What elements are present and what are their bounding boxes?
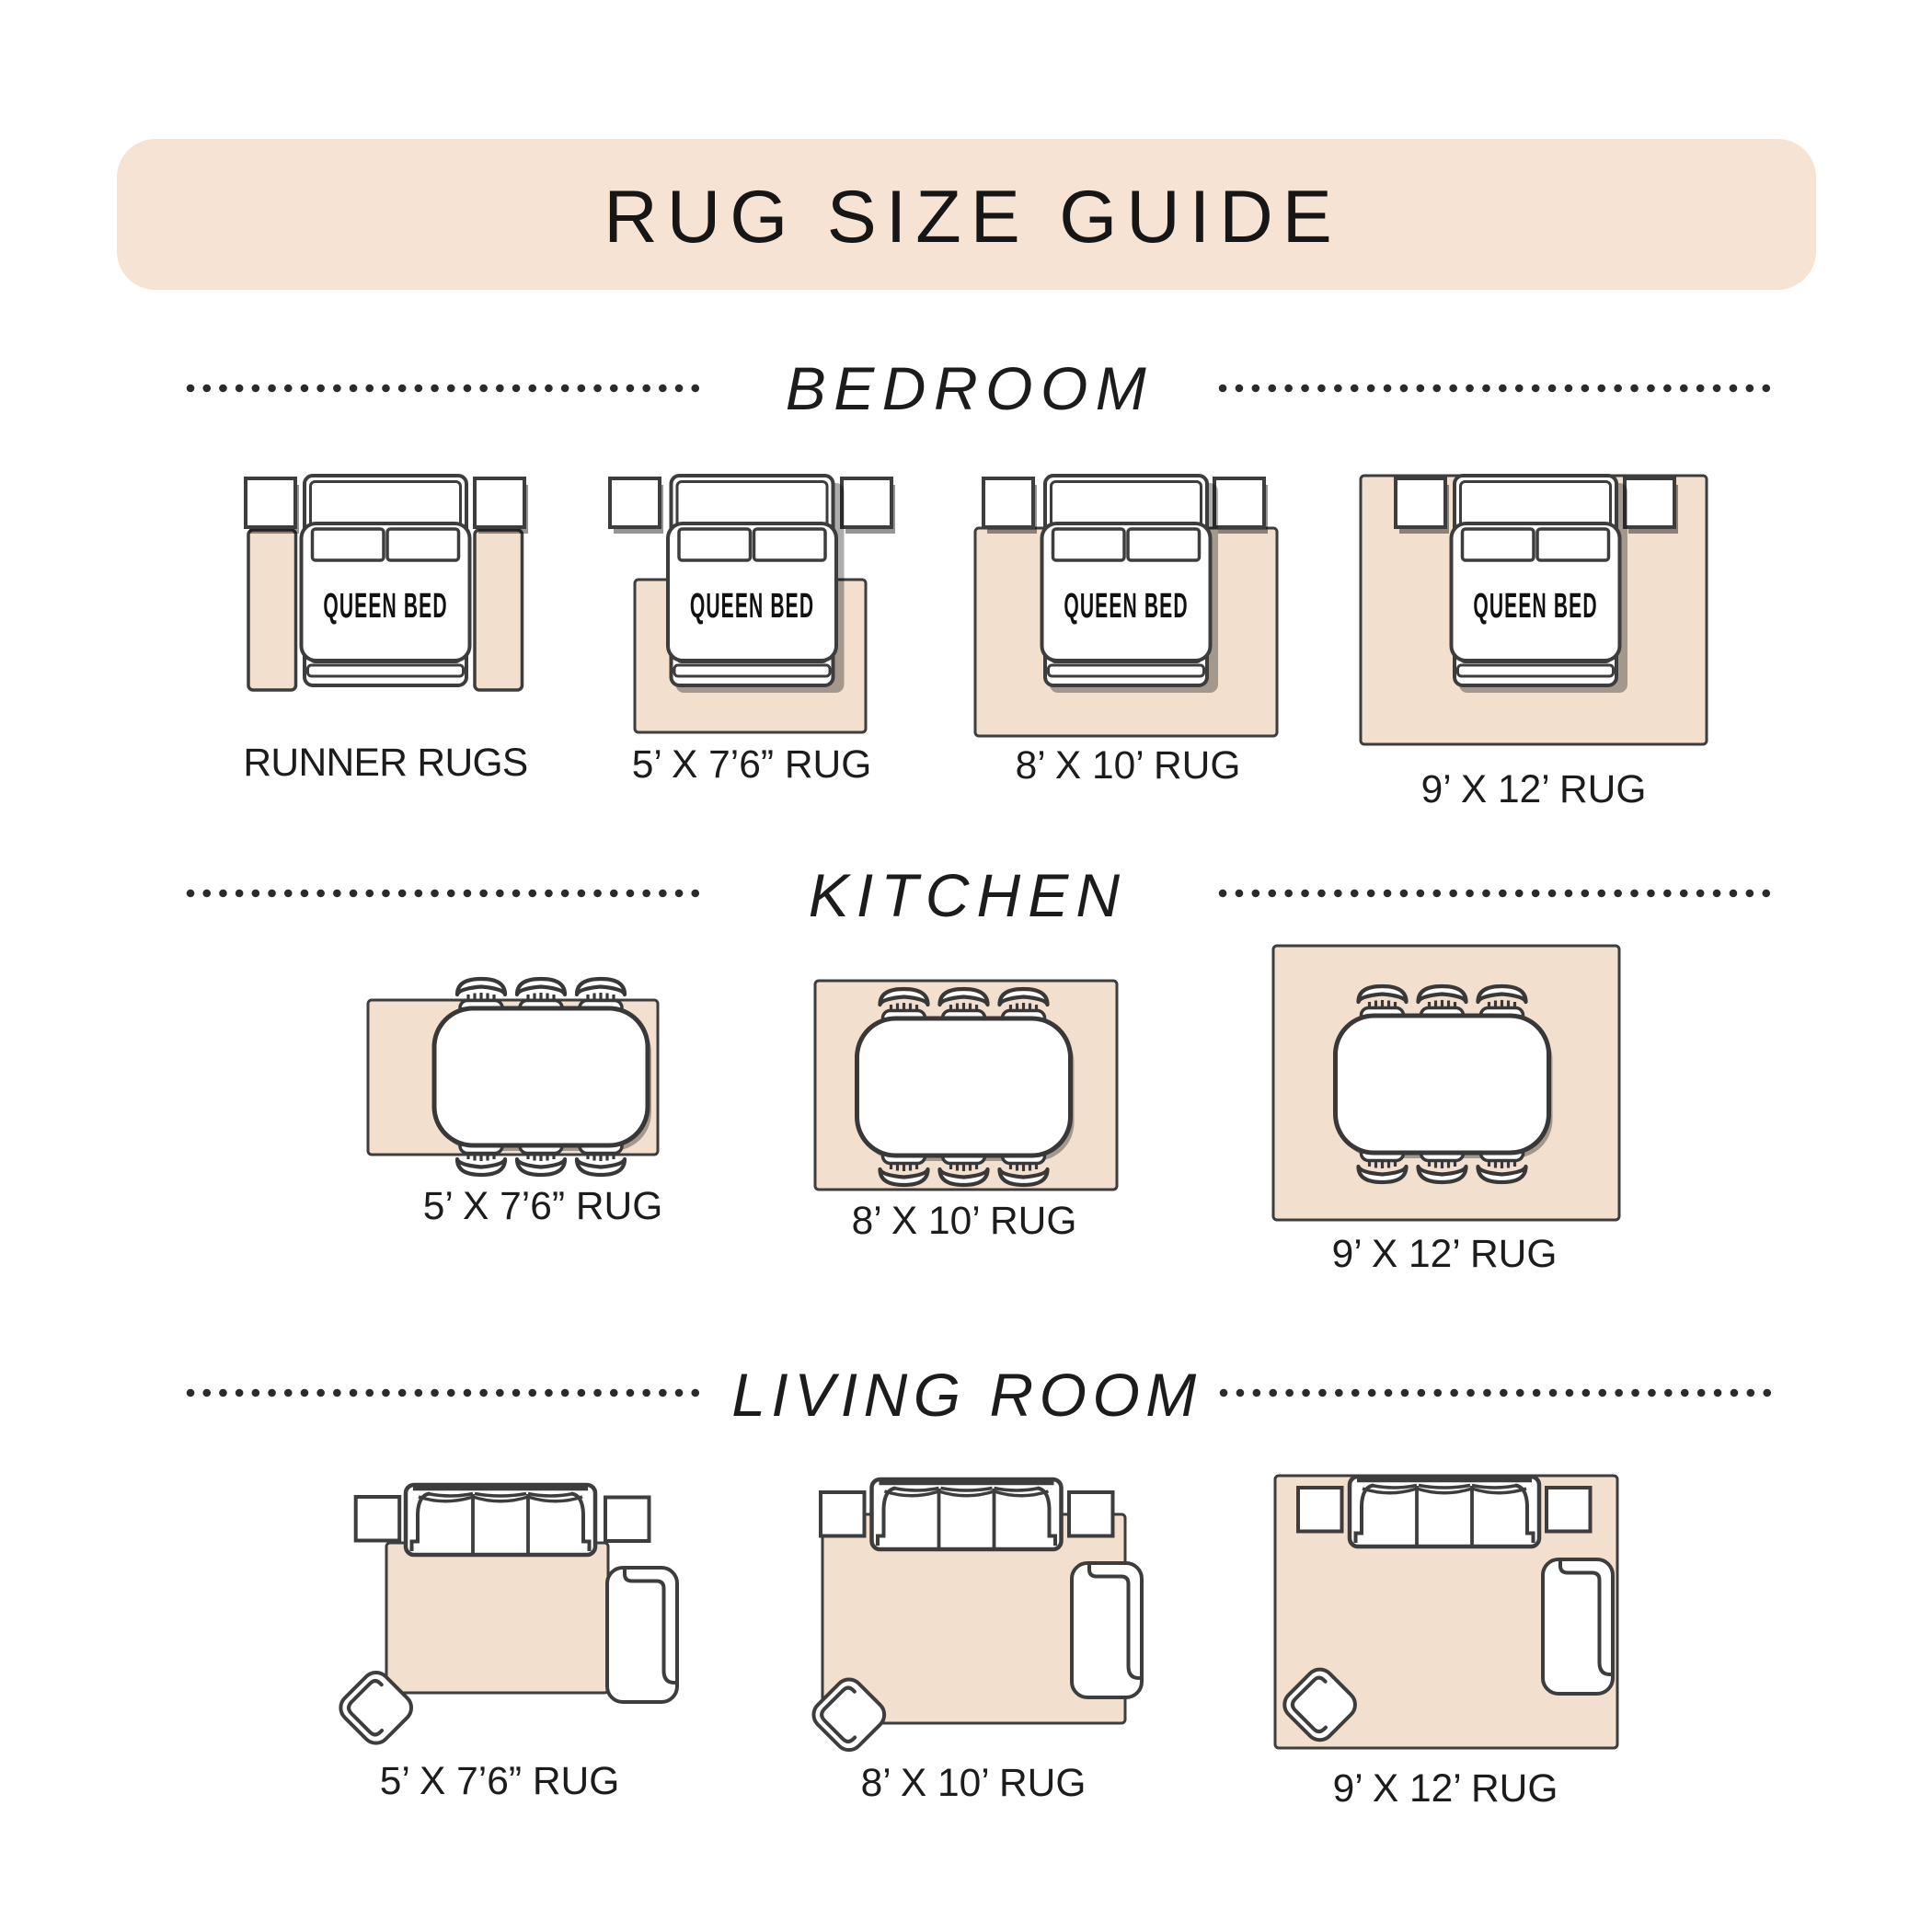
svg-text:RUNNER RUGS: RUNNER RUGS — [243, 742, 527, 785]
svg-text:9’ X 12’ RUG: 9’ X 12’ RUG — [1333, 1767, 1558, 1811]
svg-text:QUEEN BED: QUEEN BED — [1064, 585, 1188, 625]
svg-text:QUEEN BED: QUEEN BED — [1473, 585, 1597, 625]
svg-text:5’ X 7’6” RUG: 5’ X 7’6” RUG — [632, 743, 872, 787]
svg-text:8’ X 10’ RUG: 8’ X 10’ RUG — [1016, 744, 1241, 788]
svg-text:BEDROOM: BEDROOM — [786, 354, 1155, 422]
svg-text:LIVING ROOM: LIVING ROOM — [731, 1361, 1202, 1429]
svg-text:9’ X 12’ RUG: 9’ X 12’ RUG — [1421, 768, 1647, 811]
svg-text:QUEEN BED: QUEEN BED — [690, 585, 814, 625]
svg-text:RUG SIZE GUIDE: RUG SIZE GUIDE — [604, 176, 1341, 259]
svg-text:5’ X 7’6” RUG: 5’ X 7’6” RUG — [380, 1760, 620, 1803]
svg-text:8’ X 10’ RUG: 8’ X 10’ RUG — [861, 1762, 1087, 1805]
svg-text:KITCHEN: KITCHEN — [809, 861, 1127, 929]
svg-text:8’ X 10’ RUG: 8’ X 10’ RUG — [852, 1200, 1077, 1243]
svg-text:5’ X 7’6” RUG: 5’ X 7’6” RUG — [423, 1185, 663, 1228]
svg-text:9’ X 12’ RUG: 9’ X 12’ RUG — [1332, 1233, 1558, 1276]
svg-text:QUEEN BED: QUEEN BED — [323, 585, 447, 625]
